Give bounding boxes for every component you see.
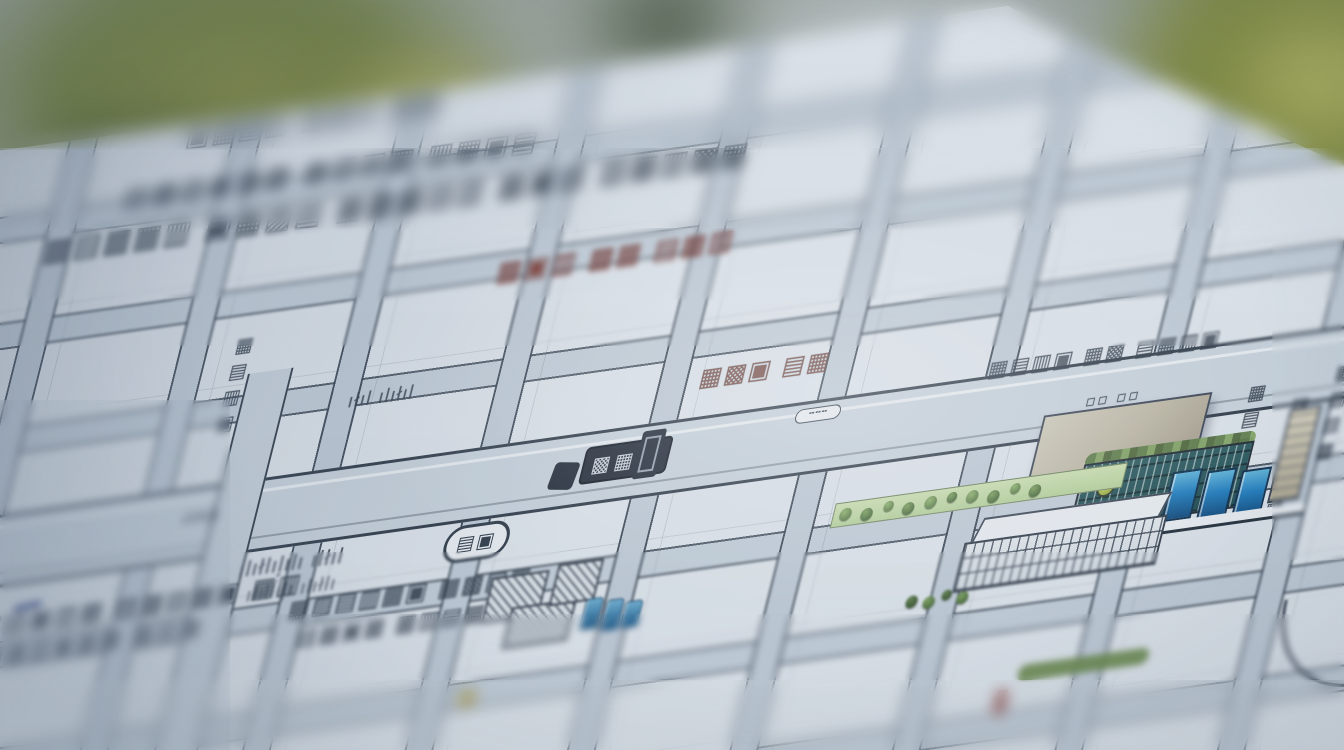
blur-strip-mid [0, 298, 1344, 346]
blur-patch-bottom-left [0, 400, 230, 750]
blur-strip-upper-mid [0, 228, 1344, 300]
photo-of-hand-drawn-map: ▦▤▩▦▥ ▣▦▨▤ ▦▩▦▤▥ ▦▣▤ ▨▦▥▩▦ ▤▦▥▣▦▩ ▦▨▤▦ ▥… [0, 0, 1344, 750]
blur-patch-right [1272, 160, 1344, 560]
blur-strip-top [0, 0, 1344, 150]
blur-strip-upper [0, 148, 1344, 230]
